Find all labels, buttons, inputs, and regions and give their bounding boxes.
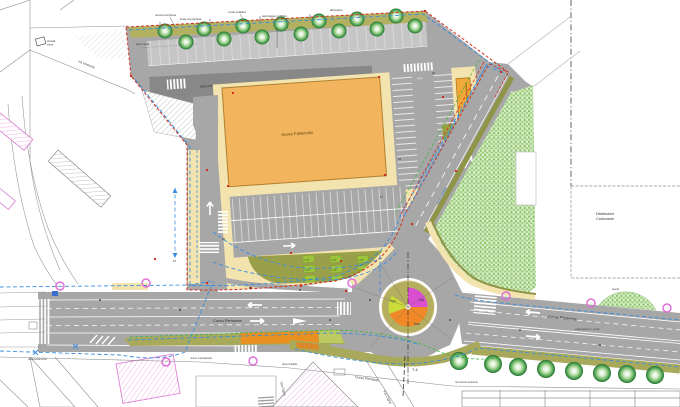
svg-text:area verde: area verde (136, 42, 150, 46)
svg-text:esist.: esist. (47, 43, 54, 47)
svg-text:recinzione esistente: recinzione esistente (455, 380, 478, 384)
svg-text:nuova recinzione: nuova recinzione (155, 13, 177, 17)
svg-text:aiuola: aiuola (612, 287, 619, 291)
svg-text:limite di proprieta: limite di proprieta (180, 17, 202, 21)
svg-text:L.on: L.on (304, 257, 310, 261)
svg-text:sistemazione a verde: sistemazione a verde (575, 327, 600, 331)
svg-text:L.on: L.on (331, 257, 337, 261)
svg-text:Corso Piemonte: Corso Piemonte (213, 318, 242, 323)
svg-text:alberature: alberature (330, 8, 343, 12)
svg-text:pista ciclabile: pista ciclabile (282, 362, 298, 366)
svg-text:attraversamento: attraversamento (28, 357, 47, 361)
svg-text:L.on: L.on (358, 258, 364, 262)
svg-text:7.4: 7.4 (412, 367, 418, 372)
svg-text:parcheggio pubblico: parcheggio pubblico (262, 14, 287, 18)
svg-text:nuovo marciapiede: nuovo marciapiede (190, 356, 212, 360)
svg-text:Kiw: Kiw (419, 298, 425, 302)
svg-text:Distributore: Distributore (596, 212, 614, 216)
svg-text:verde pubblico: verde pubblico (228, 10, 247, 14)
svg-text:San: San (414, 322, 420, 326)
svg-text:Carburante: Carburante (596, 217, 614, 221)
